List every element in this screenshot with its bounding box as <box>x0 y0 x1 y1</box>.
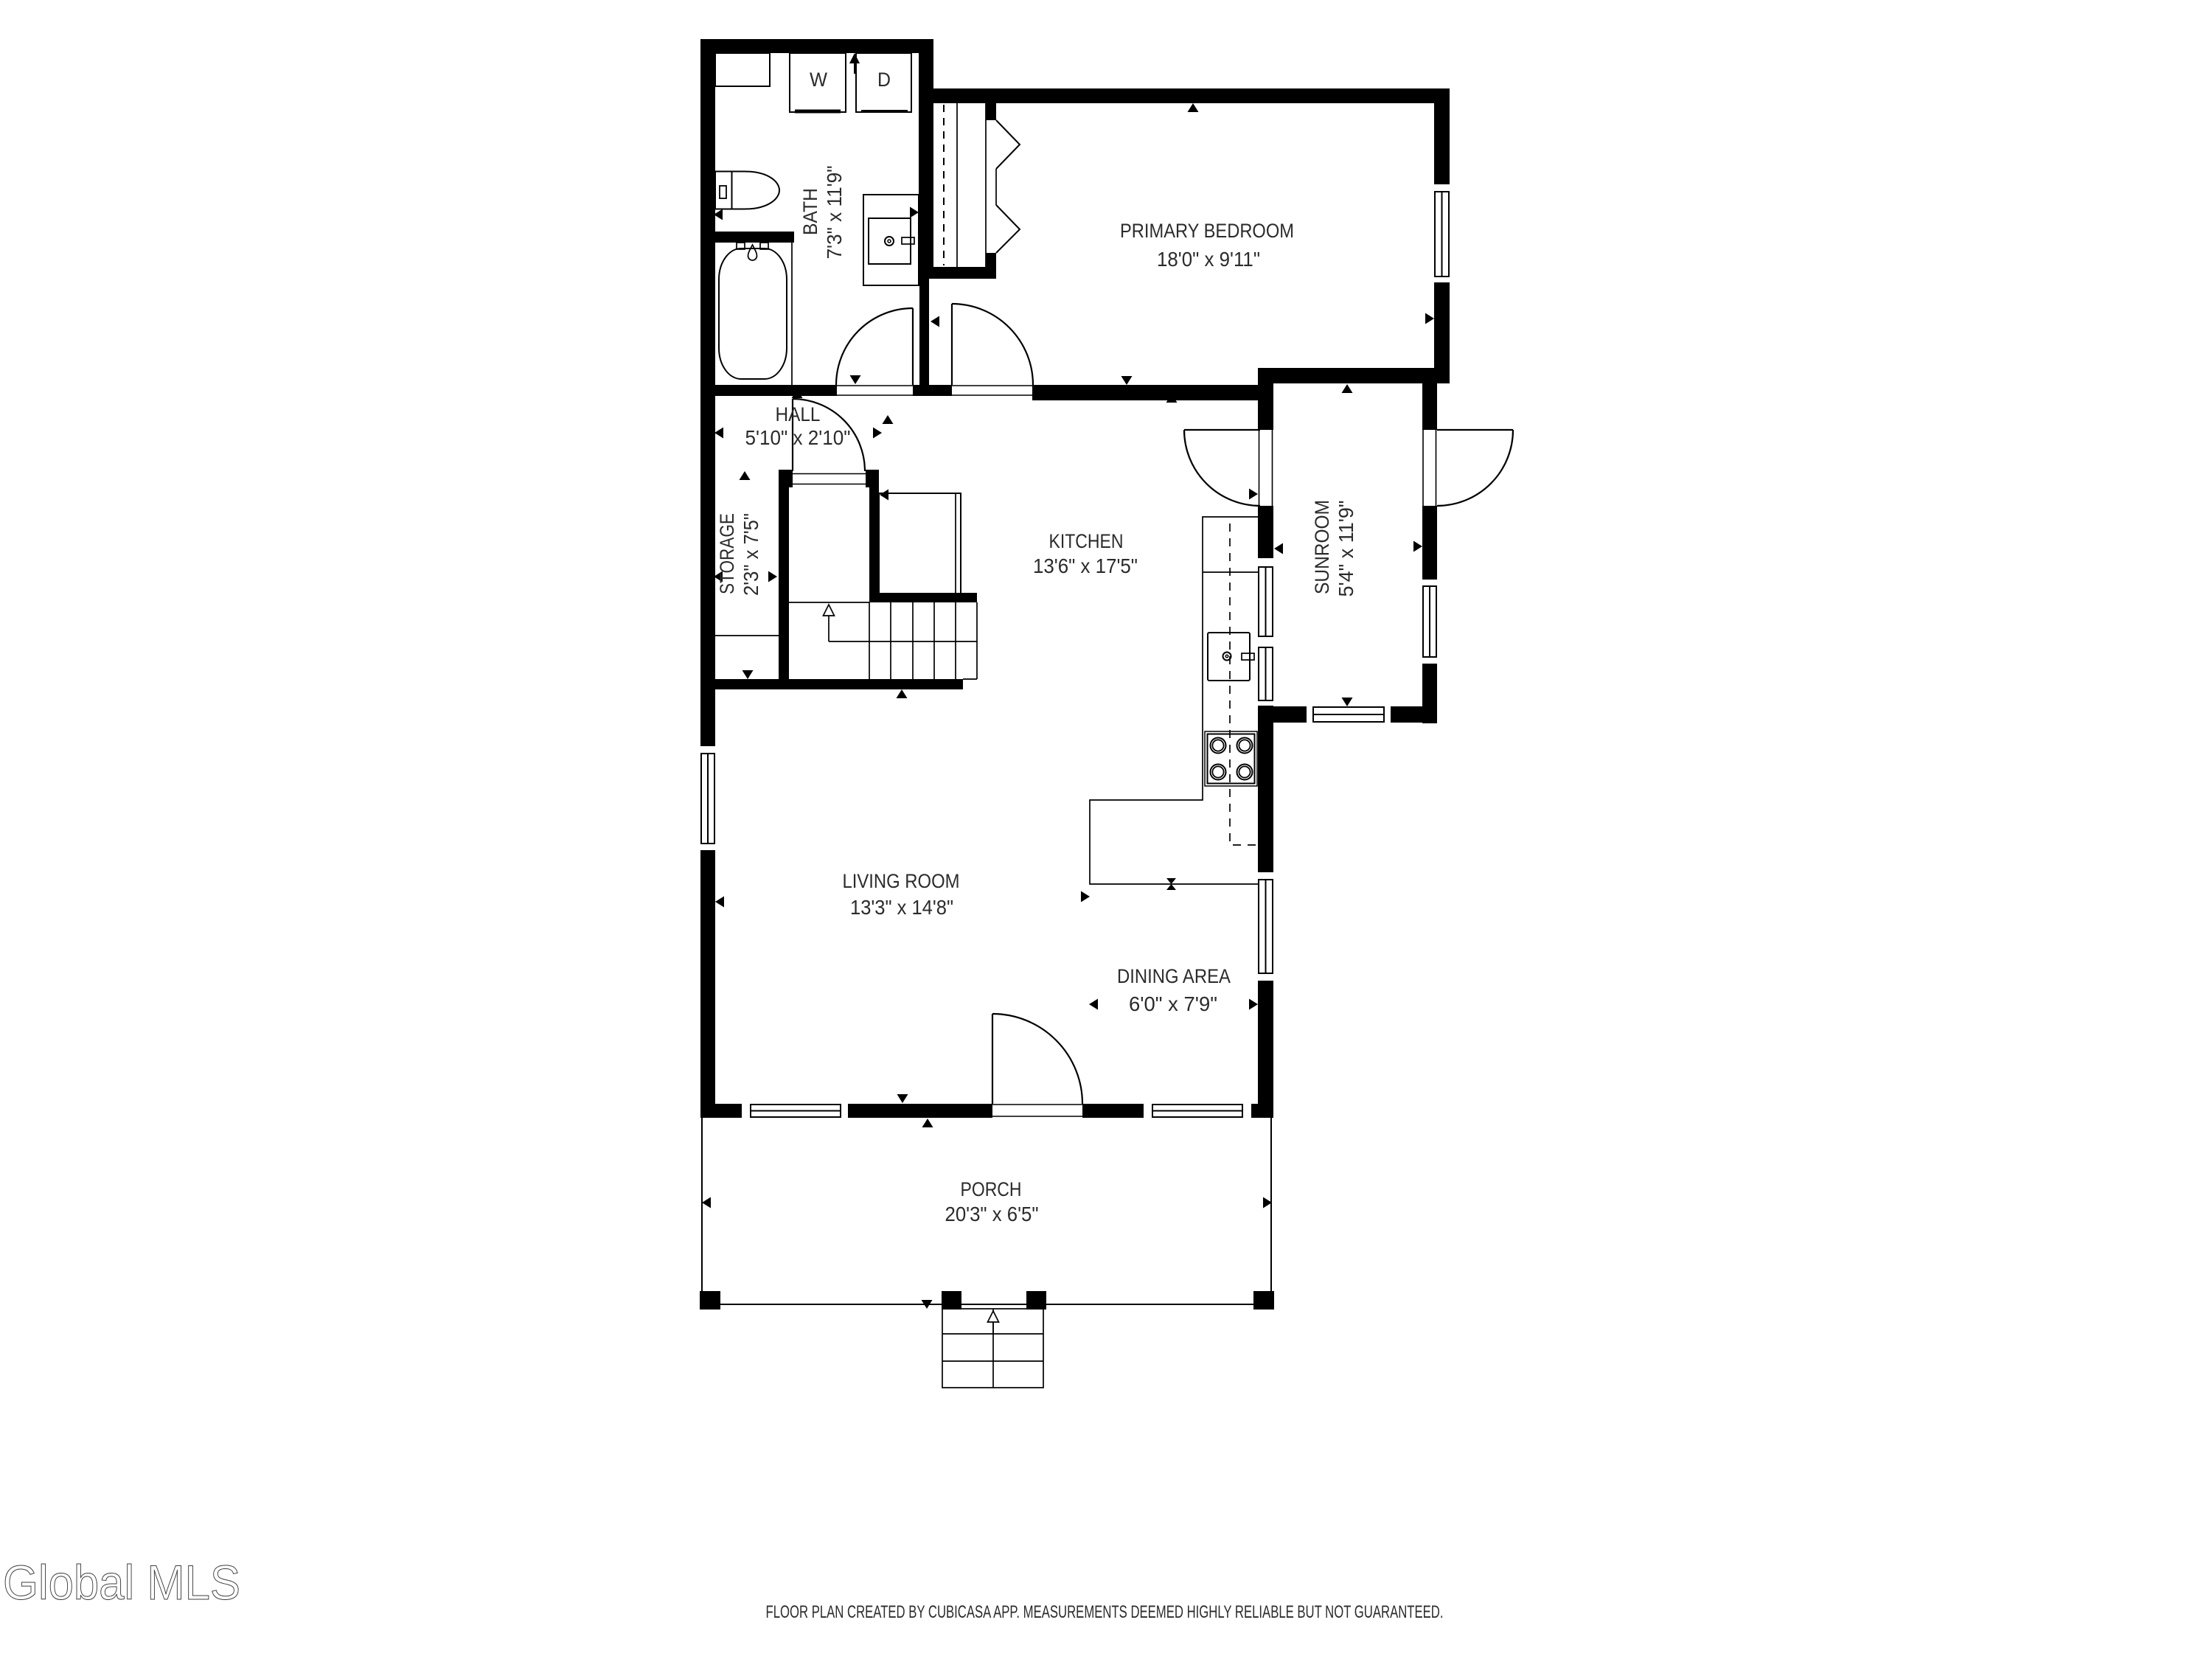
svg-text:PORCH: PORCH <box>961 1178 1022 1200</box>
svg-text:BATH: BATH <box>799 188 821 235</box>
svg-text:5'4" x 11'9": 5'4" x 11'9" <box>1335 501 1357 597</box>
svg-text:5'10" x 2'10": 5'10" x 2'10" <box>745 426 851 449</box>
svg-text:Global MLS: Global MLS <box>3 1555 240 1610</box>
svg-text:W: W <box>810 69 827 91</box>
svg-text:STORAGE: STORAGE <box>716 513 738 594</box>
svg-text:LIVING ROOM: LIVING ROOM <box>843 870 960 892</box>
svg-text:DINING AREA: DINING AREA <box>1117 965 1231 987</box>
svg-text:6'0" x 7'9": 6'0" x 7'9" <box>1129 992 1217 1015</box>
svg-text:13'6" x 17'5": 13'6" x 17'5" <box>1033 554 1138 577</box>
svg-text:HALL: HALL <box>776 403 821 425</box>
svg-text:SUNROOM: SUNROOM <box>1311 500 1333 594</box>
svg-text:7'3" x 11'9": 7'3" x 11'9" <box>823 166 846 260</box>
svg-text:KITCHEN: KITCHEN <box>1049 530 1124 552</box>
svg-text:FLOOR PLAN CREATED BY CUBICASA: FLOOR PLAN CREATED BY CUBICASA APP. MEAS… <box>766 1602 1444 1622</box>
svg-text:PRIMARY BEDROOM: PRIMARY BEDROOM <box>1120 220 1294 242</box>
svg-text:2'3" x 7'5": 2'3" x 7'5" <box>740 513 762 596</box>
svg-text:20'3" x 6'5": 20'3" x 6'5" <box>945 1203 1039 1225</box>
svg-text:18'0" x 9'11": 18'0" x 9'11" <box>1157 248 1260 271</box>
svg-text:13'3" x 14'8": 13'3" x 14'8" <box>850 896 953 919</box>
svg-text:D: D <box>877 69 891 91</box>
